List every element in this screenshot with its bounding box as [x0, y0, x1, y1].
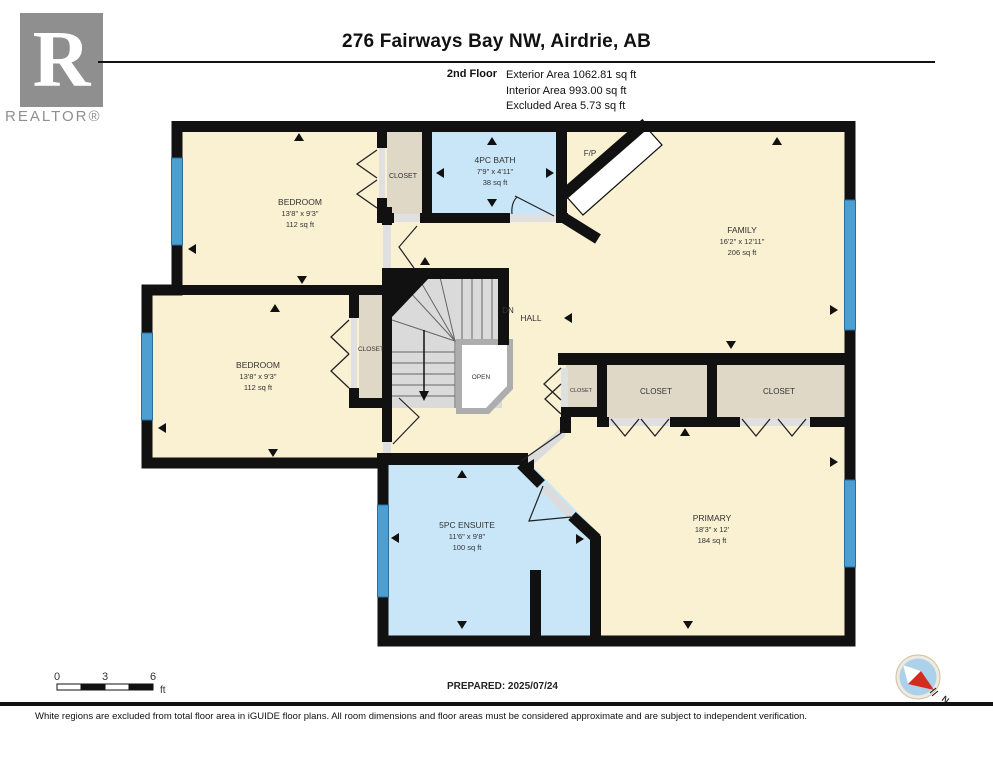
window-family [845, 200, 856, 330]
svg-text:7'9" x 4'11": 7'9" x 4'11" [477, 167, 514, 176]
svg-text:184 sq ft: 184 sq ft [698, 536, 728, 545]
floor-plan-svg: BEDROOM 13'8" x 9'3" 112 sq ft 4PC BATH … [0, 0, 993, 768]
svg-text:206 sq ft: 206 sq ft [728, 248, 758, 257]
svg-text:4PC BATH: 4PC BATH [475, 155, 516, 165]
scale-tick-0: 0 [54, 671, 60, 683]
window-bedroom2 [142, 333, 153, 420]
svg-text:5PC ENSUITE: 5PC ENSUITE [439, 520, 495, 530]
svg-text:16'2" x 12'11": 16'2" x 12'11" [720, 237, 765, 246]
svg-text:BEDROOM: BEDROOM [278, 197, 322, 207]
closet-hall-label: CLOSET [570, 388, 593, 394]
prepared-date: PREPARED: 2025/07/24 [447, 681, 558, 692]
svg-text:18'3" x 12': 18'3" x 12' [695, 525, 730, 534]
closet-hall-floor [566, 365, 597, 408]
svg-text:112 sq ft: 112 sq ft [286, 220, 315, 229]
scale-bar: 0 3 6 ft [54, 671, 166, 696]
scale-tick-3: 3 [102, 671, 108, 683]
closet-bedroom1-label: CLOSET [389, 173, 418, 180]
hall-label: HALL [520, 313, 542, 323]
window-ensuite [378, 505, 389, 597]
window-primary [845, 480, 856, 567]
closet-right-label: CLOSET [763, 387, 795, 396]
fireplace-label: F/P [584, 149, 596, 158]
svg-text:13'8" x 9'3": 13'8" x 9'3" [240, 372, 277, 381]
svg-text:13'8" x 9'3": 13'8" x 9'3" [282, 209, 319, 218]
scale-tick-6: 6 [150, 671, 156, 683]
svg-text:BEDROOM: BEDROOM [236, 360, 280, 370]
svg-text:100 sq ft: 100 sq ft [453, 543, 483, 552]
svg-text:FAMILY: FAMILY [727, 225, 757, 235]
svg-text:38 sq ft: 38 sq ft [483, 178, 509, 187]
scale-unit: ft [160, 685, 166, 696]
window-bedroom1 [172, 158, 183, 245]
compass: N [896, 655, 951, 706]
room-label-primary: PRIMARY 18'3" x 12' 184 sq ft [693, 513, 732, 545]
svg-text:11'6" x 9'8": 11'6" x 9'8" [449, 532, 486, 541]
footer-divider [0, 702, 993, 706]
disclaimer-text: White regions are excluded from total fl… [35, 711, 807, 722]
closet-bedroom2-label: CLOSET [358, 346, 384, 353]
dn-label: DN [502, 306, 514, 315]
svg-text:PRIMARY: PRIMARY [693, 513, 732, 523]
open-label: OPEN [472, 374, 491, 381]
svg-text:112 sq ft: 112 sq ft [244, 383, 273, 392]
closet-mid-label: CLOSET [640, 387, 672, 396]
